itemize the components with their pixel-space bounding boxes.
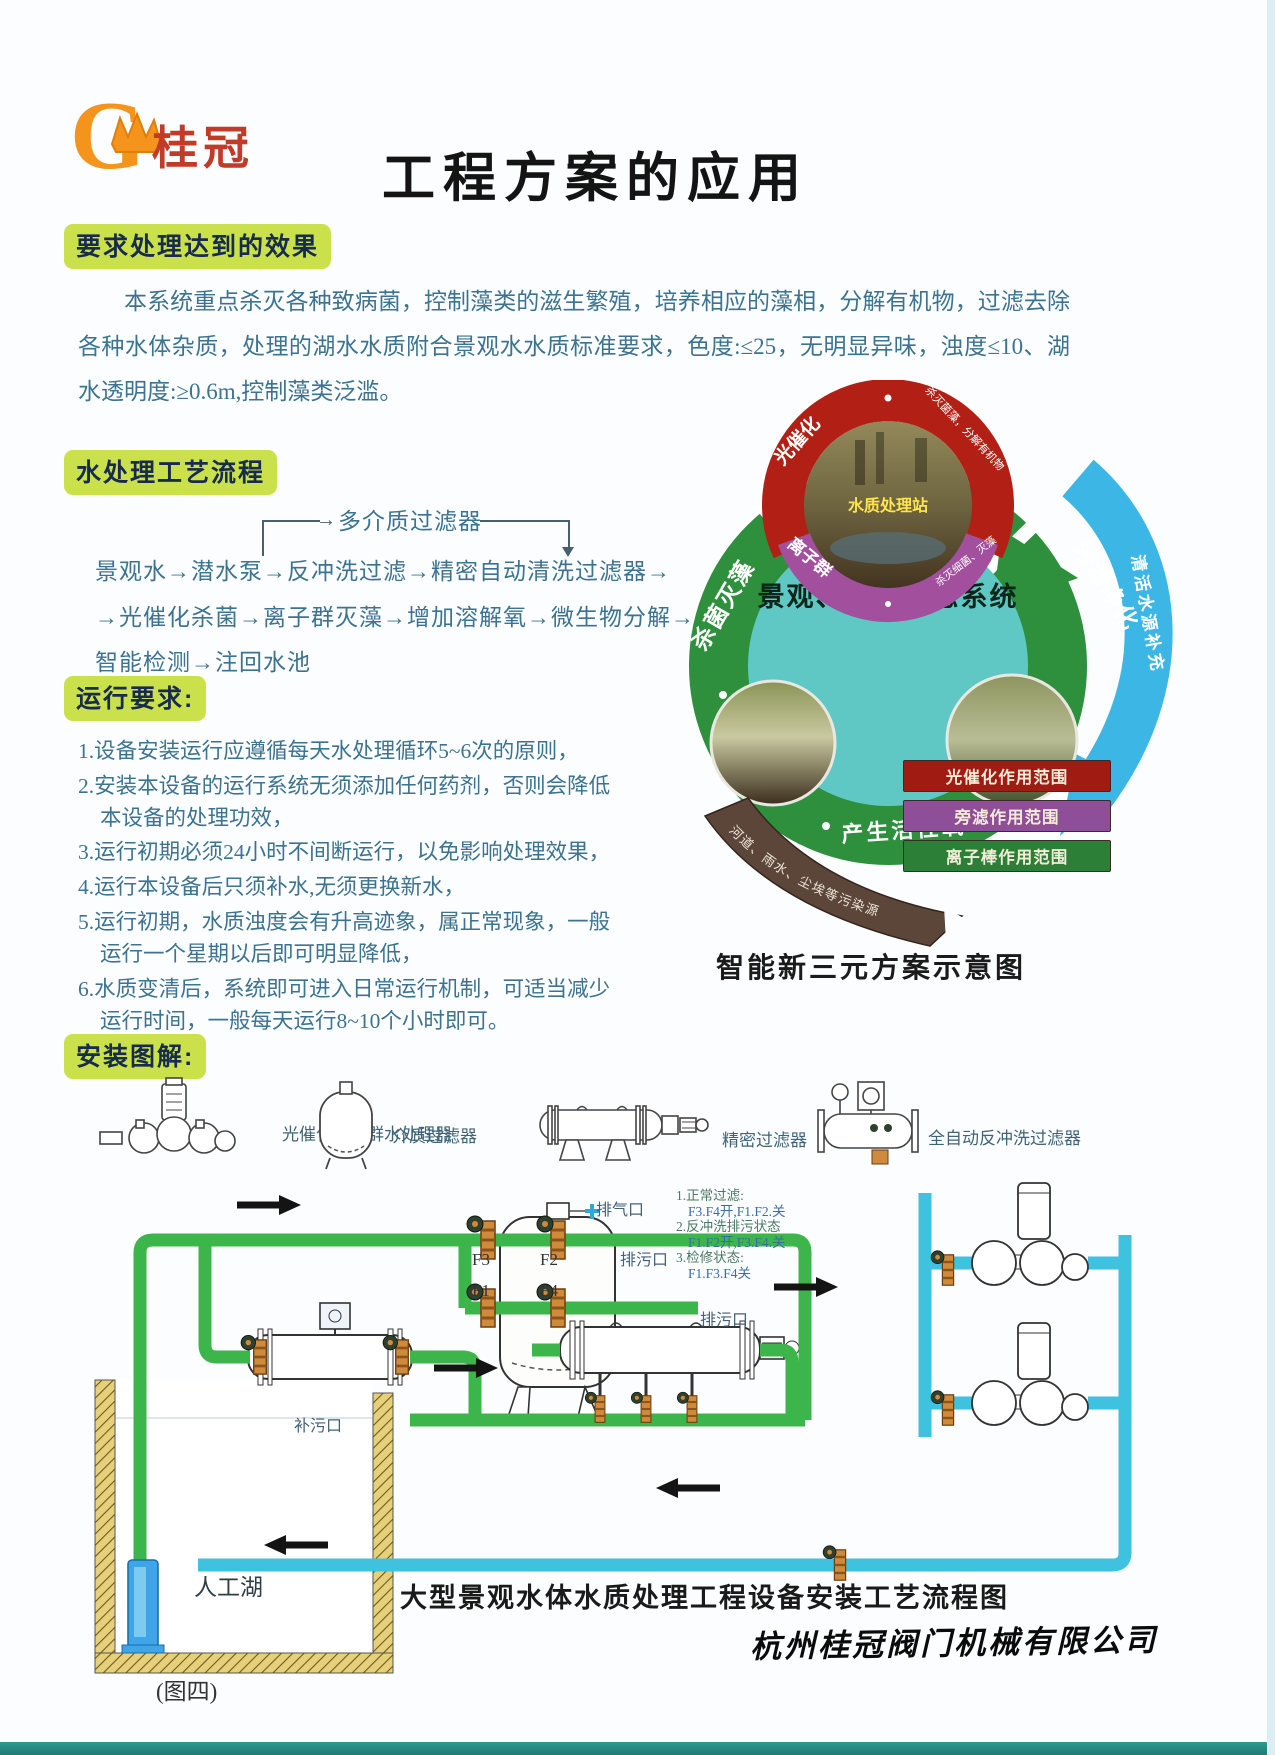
arc-bullet-icon bbox=[885, 395, 892, 402]
submersible-pump bbox=[122, 1560, 164, 1653]
operation-item: 3.运行初期必须24小时不间断运行，以免影响处理效果， bbox=[78, 837, 626, 869]
equipment-icon-media-filter bbox=[310, 1080, 385, 1172]
operation-item: 1.设备安装运行应遵循每天水处理循环5~6次的原则， bbox=[78, 736, 626, 768]
eco-diagram: 清活水源补充 景观、鱼池生态系统 杀菌灭藻 旁滤净化 产生活性氧 光催化 bbox=[630, 380, 1185, 980]
valve-notes: 1.正常过滤: F3.F4开,F1.F2.关 2.反冲洗排污状态 F1.F2开,… bbox=[676, 1188, 786, 1281]
pump-cluster-upper bbox=[972, 1183, 1088, 1285]
note-line: F3.F4开,F1.F2.关 bbox=[676, 1204, 786, 1220]
eco-legend: 光催化作用范围 旁滤作用范围 离子棒作用范围 bbox=[903, 760, 1111, 880]
ring-bullet-icon bbox=[822, 822, 830, 830]
drain-stems bbox=[600, 1373, 692, 1397]
flow-branch-arrow: → bbox=[316, 510, 336, 530]
lake-wall-right bbox=[373, 1393, 393, 1653]
page: G 桂冠 工程方案的应用 要求处理达到的效果 本系统重点杀灭各种致病菌，控制藻类… bbox=[0, 0, 1275, 1755]
ring-bullet-icon bbox=[719, 691, 727, 699]
blue-swoosh-arc bbox=[1078, 478, 1149, 798]
valve-label-f3: F3 bbox=[472, 1250, 490, 1270]
pump-cluster-lower bbox=[972, 1323, 1088, 1425]
flow-branch-line-up bbox=[262, 520, 264, 556]
arc-bullet-icon bbox=[885, 601, 891, 607]
eco-caption: 智能新三元方案示意图 bbox=[716, 946, 1026, 986]
flow-line-1: 景观水→潜水泵→反冲洗过滤→精密自动清洗过滤器→ bbox=[95, 552, 671, 586]
drain-label-right: 排污口 bbox=[620, 1246, 668, 1270]
flow-branch-label: 多介质过滤器 bbox=[338, 502, 482, 536]
page-title: 工程方案的应用 bbox=[382, 136, 809, 212]
station-label: 水质处理站 bbox=[848, 496, 928, 515]
flow-line-3: 智能检测→注回水池 bbox=[95, 643, 311, 677]
brand-name: 桂冠 bbox=[152, 112, 254, 178]
flow-line-2: →光催化杀菌→离子群灭藻→增加溶解氧→微生物分解→ bbox=[95, 598, 695, 632]
valve-label-f4: F4 bbox=[540, 1281, 558, 1301]
legend-bypass: 旁滤作用范围 bbox=[903, 800, 1111, 832]
figure-label: (图四) bbox=[156, 1672, 217, 1706]
fill-label-left: 补污口 bbox=[294, 1412, 342, 1436]
scan-edge-bottom bbox=[0, 1742, 1275, 1755]
flow-arrow-left-icon bbox=[656, 1478, 720, 1498]
valve-label-f2: F2 bbox=[540, 1250, 558, 1270]
flow-branch-line-h1 bbox=[262, 520, 320, 522]
note-line: 2.反冲洗排污状态 bbox=[676, 1219, 786, 1235]
legend-photocatalysis: 光催化作用范围 bbox=[903, 760, 1111, 792]
piping-caption: 大型景观水体水质处理工程设备安装工艺流程图 bbox=[400, 1576, 1009, 1615]
lake-label: 人工湖 bbox=[194, 1568, 263, 1602]
scan-edge-right bbox=[1267, 0, 1275, 1755]
equipment-icon-photocatalytic bbox=[92, 1076, 277, 1171]
section-heading-effect: 要求处理达到的效果 bbox=[64, 224, 331, 269]
section-heading-install: 安装图解: bbox=[64, 1034, 206, 1079]
flow-branch-line-down bbox=[568, 520, 570, 548]
pond-photo-left bbox=[711, 681, 835, 805]
equipment-icon-backwash-filter bbox=[816, 1076, 928, 1172]
lake-wall-bottom bbox=[95, 1653, 393, 1673]
lake-wall-left bbox=[95, 1380, 115, 1673]
operation-item: 2.安装本设备的运行系统无须添加任何药剂，否则会降低本设备的处理功效， bbox=[78, 771, 626, 835]
note-line: 1.正常过滤: bbox=[676, 1188, 786, 1204]
operation-item: 5.运行初期，水质浊度会有升高迹象，属正常现象，一般运行一个星期以后即可明显降低… bbox=[78, 907, 626, 971]
equipment-label-4: 全自动反冲洗过滤器 bbox=[928, 1124, 1081, 1149]
vent-label: 排气口 bbox=[596, 1196, 644, 1220]
operation-item: 6.水质变清后，系统即可进入日常运行机制，可适当减少运行时间，一般每天运行8~1… bbox=[78, 974, 626, 1038]
equipment-label-3: 精密过滤器 bbox=[722, 1126, 807, 1151]
section-heading-operation: 运行要求: bbox=[64, 676, 206, 721]
company-name: 杭州桂冠阀门机械有限公司 bbox=[750, 1614, 1159, 1666]
equipment-label-2: 介质过滤器 bbox=[392, 1122, 477, 1147]
section-heading-process: 水处理工艺流程 bbox=[64, 450, 277, 495]
operation-item: 4.运行本设备后只须补水,无须更换新水， bbox=[78, 872, 626, 904]
equipment-icon-precision-filter bbox=[522, 1098, 722, 1170]
valve-label-f1: F1 bbox=[472, 1281, 490, 1301]
drain-label-center: 排污口 bbox=[700, 1306, 748, 1330]
flow-arrow-right-icon bbox=[237, 1195, 301, 1215]
note-line: F1.F2开,F3.F4.关 bbox=[676, 1235, 786, 1251]
legend-ion-rod: 离子棒作用范围 bbox=[903, 840, 1111, 872]
note-line: 3.检修状态: bbox=[676, 1250, 786, 1266]
ribbon-fork-icon bbox=[944, 906, 976, 942]
operation-list: 1.设备安装运行应遵循每天水处理循环5~6次的原则， 2.安装本设备的运行系统无… bbox=[78, 736, 626, 1040]
flow-branch-line-h2 bbox=[480, 520, 568, 522]
note-line: F1.F3.F4关 bbox=[676, 1266, 786, 1282]
